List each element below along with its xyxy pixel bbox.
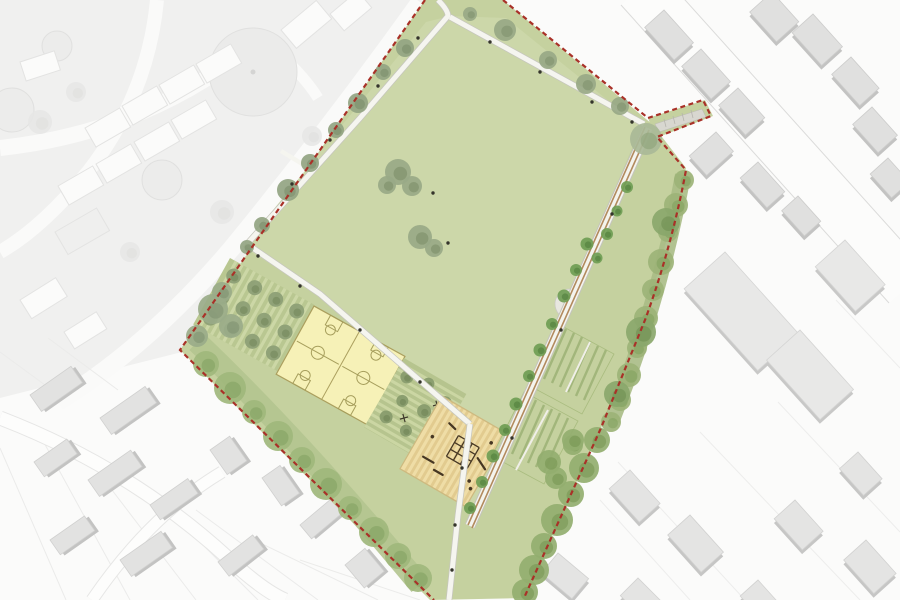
tree-core [36, 117, 48, 129]
tree-core [394, 551, 408, 565]
tree-core [569, 436, 580, 447]
tree-core [595, 256, 601, 262]
dot [610, 212, 613, 215]
tree-core [527, 374, 533, 380]
roadside-building [850, 107, 899, 157]
dot [538, 70, 541, 73]
outbuilding [740, 580, 785, 600]
house [345, 548, 384, 588]
tree-core [605, 232, 611, 238]
tree-core [218, 207, 230, 219]
outbuilding [844, 540, 896, 594]
tree-core [552, 474, 563, 485]
tree-core [574, 268, 580, 274]
dot [418, 380, 421, 383]
outbuilding [774, 500, 823, 550]
tree-core [585, 241, 592, 248]
tree-core [225, 382, 242, 399]
tree-core [202, 359, 216, 373]
tree-core [346, 503, 358, 515]
dot [431, 191, 434, 194]
dot [358, 328, 361, 331]
tree-core [468, 11, 475, 18]
dot [510, 436, 513, 439]
outbuilding [839, 452, 882, 495]
dot [488, 40, 491, 43]
tree-core [369, 526, 385, 542]
corridor-specimen-tree [630, 123, 662, 155]
roadside-building [747, 0, 800, 46]
outbuilding [738, 580, 787, 600]
tree-core [402, 44, 411, 53]
outbuilding [772, 500, 825, 554]
tree-core [250, 407, 262, 419]
tree-core [491, 453, 498, 460]
tree-core [227, 321, 239, 333]
tree-core [501, 26, 512, 37]
roadside-building [868, 158, 900, 202]
dot [298, 284, 301, 287]
tree-core [550, 322, 556, 328]
dot [328, 138, 331, 141]
tree-core [649, 286, 660, 297]
house [50, 514, 99, 557]
dot [290, 182, 293, 185]
house [100, 385, 161, 437]
dot [630, 120, 633, 123]
tree-core [681, 176, 691, 186]
tree-core [538, 347, 545, 354]
tree-core [613, 389, 627, 403]
tree-core [384, 181, 393, 190]
dot [453, 523, 456, 526]
site-plan-stage [0, 0, 900, 600]
tree-core [321, 478, 338, 495]
tree-core [583, 80, 593, 90]
tree-core [73, 88, 83, 98]
tree-core [514, 401, 521, 408]
tree-core [545, 457, 557, 469]
tree-core [394, 167, 408, 181]
tree-core [593, 435, 607, 449]
tree-core [552, 514, 569, 531]
tree-core [431, 244, 440, 253]
tree-core [641, 133, 658, 150]
dot [256, 254, 259, 257]
tree-core [380, 69, 388, 77]
roadside-building [689, 132, 733, 175]
outbuilding [620, 578, 670, 600]
dot [460, 466, 463, 469]
tree-core [413, 572, 428, 587]
tree-core [608, 418, 618, 428]
tree-core [562, 293, 569, 300]
tree-core [208, 303, 224, 319]
dot [416, 36, 419, 39]
tree-core [625, 185, 631, 191]
dot [590, 100, 593, 103]
pond-centre [251, 70, 256, 75]
tree-core [273, 430, 289, 446]
tree-core [416, 232, 428, 244]
tree-core [409, 182, 419, 192]
tree-core [309, 132, 319, 142]
dot [559, 328, 562, 331]
road [0, 418, 285, 600]
dot [376, 84, 379, 87]
outbuilding [665, 515, 725, 576]
roadside-building [853, 107, 898, 153]
tree-core [298, 455, 312, 469]
tree-core [615, 209, 621, 215]
tree-core [503, 428, 509, 434]
outbuilding [607, 470, 662, 526]
outbuilding [618, 578, 672, 600]
roadside-building [792, 14, 842, 65]
tree-core [468, 506, 474, 512]
tree-core [521, 587, 535, 600]
roadside-building [829, 57, 881, 110]
tree-core [193, 332, 204, 343]
roadside-building [687, 132, 735, 180]
dot [450, 568, 453, 571]
tree-core [480, 480, 486, 486]
tree-core [625, 370, 637, 382]
site-plan-svg [0, 0, 900, 600]
tree-core [617, 102, 626, 111]
tree-core [245, 244, 252, 251]
tree-core [355, 99, 365, 109]
dot [446, 241, 449, 244]
tree-core [127, 248, 137, 258]
parcel-lines [836, 300, 900, 368]
outbuilding [837, 452, 884, 500]
tree-core [545, 56, 554, 65]
pond-small [142, 160, 182, 200]
